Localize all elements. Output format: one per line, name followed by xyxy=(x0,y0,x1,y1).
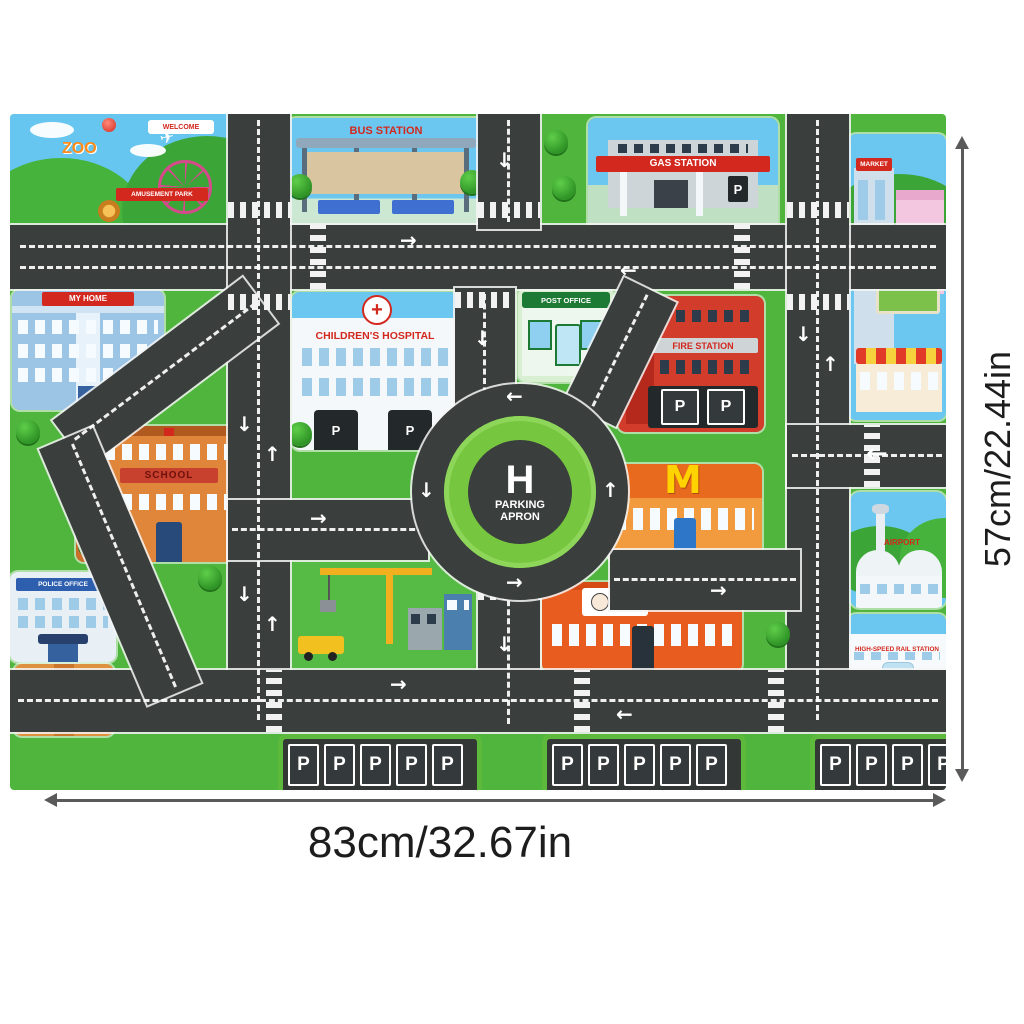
tree xyxy=(16,420,40,444)
windows xyxy=(660,310,756,322)
school-door xyxy=(156,522,182,562)
fire-station-label: FIRE STATION xyxy=(672,341,733,351)
windows xyxy=(447,600,469,610)
truck-wheel xyxy=(328,652,337,661)
road-arrow: ← xyxy=(616,704,633,724)
parking-stall: P xyxy=(660,744,691,786)
lane-marking xyxy=(20,266,936,269)
mcdonalds: M xyxy=(608,464,762,562)
parking-stall-label: P xyxy=(675,398,686,416)
police-label: POLICE OFFICE xyxy=(38,581,88,588)
windows xyxy=(18,616,108,628)
parking-stall-label: P xyxy=(597,754,610,776)
gas-station-sign: GAS STATION xyxy=(596,156,770,172)
parking-stall: P xyxy=(856,744,887,786)
parking-stall: P xyxy=(661,389,699,425)
bus-station: BUS STATION xyxy=(288,118,484,230)
crane-jib xyxy=(320,568,432,575)
windows xyxy=(411,614,439,624)
station-door xyxy=(654,180,688,208)
parking-stall-label: P xyxy=(561,754,574,776)
parking-stall-label: P xyxy=(441,754,454,776)
airport: AIRPORT xyxy=(850,492,946,608)
hospital-cross-icon: + xyxy=(362,295,392,325)
width-dimension-label: 83cm/32.67in xyxy=(180,818,700,868)
police-canopy xyxy=(38,634,88,644)
product-photo: ✈ WELCOME ZOO AMUSEMENT PARK BUS STATION xyxy=(0,0,1024,1024)
crane-load xyxy=(320,600,336,612)
tree xyxy=(198,566,222,590)
post-office-label: POST OFFICE xyxy=(541,296,591,305)
windows xyxy=(860,584,938,594)
road-arrow: ← xyxy=(866,444,888,464)
height-dimension-line xyxy=(961,148,964,770)
windows xyxy=(302,348,448,366)
windows xyxy=(618,144,748,153)
road-arrow: → xyxy=(390,674,407,694)
construction-site xyxy=(290,560,476,670)
windows xyxy=(854,652,940,660)
crosswalk xyxy=(768,670,784,732)
crosswalk xyxy=(478,202,540,218)
control-tower xyxy=(876,510,885,554)
market-label: MARKET xyxy=(860,161,888,168)
parking-stall: P xyxy=(820,744,851,786)
crosswalk xyxy=(266,670,282,732)
tree xyxy=(552,176,576,200)
gas-station: GAS STATION P xyxy=(588,118,778,230)
school-banner: SCHOOL xyxy=(120,468,218,483)
truck-wheel xyxy=(304,652,313,661)
road-arrow: → xyxy=(506,572,523,592)
bench xyxy=(392,200,454,214)
lane-marking xyxy=(18,699,938,702)
window xyxy=(528,320,552,350)
fire-parking: P P xyxy=(648,386,758,428)
parking-stall: P xyxy=(552,744,583,786)
parking-lot: P P P P P xyxy=(542,734,746,790)
parking-stall-label: P xyxy=(705,754,718,776)
tree xyxy=(544,130,568,154)
parking-stall: P xyxy=(396,744,427,786)
parking-stall: P xyxy=(892,744,923,786)
crosswalk xyxy=(228,294,290,310)
market-sign: MARKET xyxy=(856,158,892,171)
fire-station-sign: FIRE STATION xyxy=(648,338,758,353)
crosswalk xyxy=(310,225,326,289)
parking-stall-label: P xyxy=(333,754,346,776)
height-dimension-label: 57cm/22.44in xyxy=(977,289,1019,629)
my-home-label: MY HOME xyxy=(69,294,107,303)
road-arrow: → xyxy=(310,508,327,528)
pump-column xyxy=(696,172,703,216)
road-arrow: ↑ xyxy=(264,444,281,464)
crosswalk xyxy=(574,670,590,732)
road-arrow: ↓ xyxy=(236,584,253,604)
amusement-park-sign: AMUSEMENT PARK xyxy=(116,188,208,201)
road-arrow: ↓ xyxy=(418,480,435,500)
parking-stall: P xyxy=(324,744,355,786)
road-arrow: ↑ xyxy=(822,354,839,374)
kfc-door xyxy=(632,626,654,672)
crosswalk xyxy=(787,294,849,310)
parking-stall-label: P xyxy=(901,754,914,776)
parking-entrance-label: P xyxy=(332,423,341,438)
windows xyxy=(860,372,938,390)
heliport-pad: H PARKING APRON xyxy=(468,440,572,544)
road-arrow: ← xyxy=(620,260,637,280)
parking-stall: P xyxy=(928,744,946,786)
play-mat: ✈ WELCOME ZOO AMUSEMENT PARK BUS STATION xyxy=(10,114,946,790)
parking-stall: P xyxy=(707,389,745,425)
tower-top xyxy=(872,504,889,514)
road-arrow: ↑ xyxy=(264,614,281,634)
zoo-sign-label: ZOO xyxy=(62,140,97,158)
tree xyxy=(766,622,790,646)
parking-stall-label: P xyxy=(829,754,842,776)
parking-stall: P xyxy=(696,744,727,786)
parking-sign: P xyxy=(728,176,748,202)
mall-roof xyxy=(896,190,944,200)
hot-air-balloon-icon xyxy=(102,118,116,132)
colonel-face-icon xyxy=(591,593,609,611)
road-arrow: ↓ xyxy=(795,324,812,344)
shop-awning xyxy=(856,348,942,364)
parking-stall-label: P xyxy=(633,754,646,776)
hospital-label: CHILDREN'S HOSPITAL xyxy=(316,330,435,342)
crosswalk xyxy=(787,202,849,218)
dimension-arrow-up xyxy=(955,136,969,149)
road-arrow: ← xyxy=(506,386,523,406)
crane-cable xyxy=(328,575,330,601)
pump-column xyxy=(620,172,627,216)
windows xyxy=(858,180,890,220)
parking-stall: P xyxy=(432,744,463,786)
parking-lot: P P P P P xyxy=(278,734,482,790)
parking-stall: P xyxy=(588,744,619,786)
welcome-banner: WELCOME xyxy=(148,120,214,134)
roof-band xyxy=(12,306,164,313)
tree xyxy=(292,422,312,446)
road-arrow: ↓ xyxy=(474,328,491,348)
parking-stall-label: P xyxy=(721,398,732,416)
parking-stall: P xyxy=(360,744,391,786)
parking-stall-label: P xyxy=(405,754,418,776)
dump-truck xyxy=(298,636,344,654)
airport-label: AIRPORT xyxy=(884,538,920,547)
crane-mast xyxy=(386,568,393,644)
mcdonalds-arches-icon: M xyxy=(664,464,702,502)
heliport-h-label: H xyxy=(506,461,535,499)
width-dimension-line xyxy=(56,799,934,802)
parking-stall-label: P xyxy=(865,754,878,776)
bus-station-label: BUS STATION xyxy=(350,125,423,137)
bench xyxy=(318,200,380,214)
parking-apron-label: PARKING APRON xyxy=(480,499,560,523)
width-dimension-value: 83cm/32.67in xyxy=(308,818,572,867)
school-flag xyxy=(164,428,174,436)
lane-marking xyxy=(20,245,936,248)
tree xyxy=(288,174,312,198)
crosswalk xyxy=(734,225,750,289)
gas-station-label: GAS STATION xyxy=(650,158,717,169)
dimension-arrow-down xyxy=(955,769,969,782)
road-arrow: → xyxy=(710,580,727,600)
shelter-wall xyxy=(307,152,464,194)
lane-marking xyxy=(232,528,424,531)
parking-sign-label: P xyxy=(734,182,743,197)
ferris-wheel-icon xyxy=(158,160,212,214)
glass-door xyxy=(555,324,581,366)
hospital-cross-glyph: + xyxy=(371,300,383,320)
parking-entrance-label: P xyxy=(406,423,415,438)
post-office-sign: POST OFFICE xyxy=(522,292,610,308)
lane-marking xyxy=(614,578,796,581)
dimension-arrow-left xyxy=(44,793,57,807)
parking-entrance: P xyxy=(314,410,358,450)
road-arrow: ↓ xyxy=(496,634,513,654)
parking-stall: P xyxy=(288,744,319,786)
dimension-arrow-right xyxy=(933,793,946,807)
windows xyxy=(18,320,158,334)
parking-stall-label: P xyxy=(369,754,382,776)
crosswalk xyxy=(228,202,290,218)
lion-icon xyxy=(98,200,120,222)
road-arrow: → xyxy=(400,230,417,250)
parking-lot: P P P P P xyxy=(810,734,946,790)
cloud xyxy=(30,122,74,138)
windows xyxy=(302,378,448,396)
windows xyxy=(18,598,108,610)
amusement-park-label: AMUSEMENT PARK xyxy=(131,191,193,198)
parking-stall-label: P xyxy=(297,754,310,776)
school-label: SCHOOL xyxy=(145,470,194,481)
road-arrow: ↑ xyxy=(602,480,619,500)
my-home-sign: MY HOME xyxy=(42,292,134,306)
windows xyxy=(660,360,756,374)
parking-stall-label: P xyxy=(937,754,946,776)
parking-stall-label: P xyxy=(669,754,682,776)
crosswalk xyxy=(455,292,515,308)
road-arrow: ↓ xyxy=(496,150,513,170)
parking-stall: P xyxy=(624,744,655,786)
height-dimension-value: 57cm/22.44in xyxy=(977,351,1018,567)
hospital-sign: CHILDREN'S HOSPITAL xyxy=(292,326,458,344)
police-door xyxy=(48,644,78,662)
welcome-banner-label: WELCOME xyxy=(163,124,200,131)
bus-station-sign: BUS STATION xyxy=(326,121,446,135)
road-arrow: ↓ xyxy=(236,414,253,434)
shelter-roof xyxy=(296,138,476,148)
